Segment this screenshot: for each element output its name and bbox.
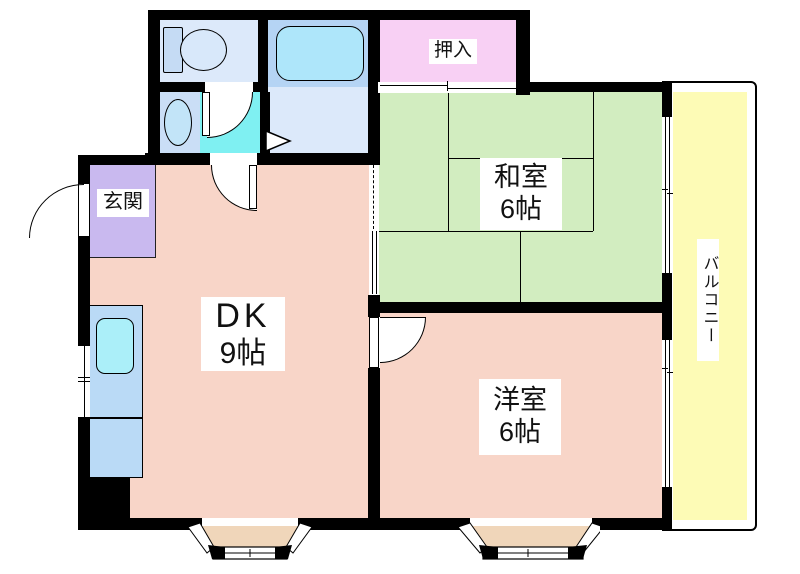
sliding-track-line (372, 231, 373, 294)
dk-washroom-door-panel (249, 165, 257, 209)
oshiire-label: 押入 (429, 39, 477, 64)
wall (298, 518, 470, 530)
balcony-label-text: バルコニー (699, 255, 718, 345)
tatami-line (593, 92, 594, 231)
youshitsu-label-text: 洋室 (493, 385, 547, 417)
washitsu-size-text: 6帖 (500, 194, 542, 226)
youshitsu-door-panel (369, 317, 379, 368)
bath-door-marker (265, 128, 293, 154)
sliding-track-tick (667, 193, 673, 194)
bay-window-youshitsu (455, 516, 600, 562)
sliding-track-line (669, 117, 670, 273)
wall (368, 295, 380, 317)
sliding-track-line (665, 117, 666, 273)
kitchen-counter-divider (88, 417, 143, 419)
wall (662, 92, 672, 117)
tatami-line (378, 231, 593, 232)
entrance-door-arc (29, 184, 84, 238)
wall (78, 417, 90, 478)
sliding-track-tick (447, 81, 448, 91)
wall (516, 10, 530, 95)
wall (148, 10, 530, 20)
sliding-track-tick (662, 189, 668, 190)
tatami-line (520, 231, 521, 302)
sliding-track-tick (667, 372, 673, 373)
washitsu-label: 和室 6帖 (480, 158, 562, 230)
tatami-line (448, 92, 449, 231)
fusuma-dashed-line (373, 165, 374, 229)
toilet-bowl-fixture (180, 29, 227, 71)
kitchen-sink-fixture (96, 318, 134, 374)
wall (257, 153, 380, 165)
wall (378, 302, 672, 313)
youshitsu-size-text: 6帖 (499, 417, 541, 449)
sliding-track-line (669, 340, 670, 487)
sliding-track-line (448, 88, 516, 89)
genkan-label: 玄関 (97, 189, 149, 217)
window-tick (78, 381, 90, 382)
bathtub-fixture (276, 26, 364, 81)
bay-window-dk (185, 516, 315, 562)
balcony-label: バルコニー (697, 239, 719, 361)
dk-size-text: 9帖 (220, 336, 267, 371)
wall (78, 237, 90, 346)
youshitsu-label: 洋室 6帖 (479, 379, 561, 455)
dk-label: DK 9帖 (201, 297, 285, 371)
sliding-track-line (380, 85, 448, 86)
sliding-track-line (376, 231, 377, 294)
dk-label-text: DK (215, 296, 270, 336)
balcony-sliding-door-youshitsu (662, 340, 673, 487)
balcony-sliding-door-washitsu (662, 117, 673, 273)
washroom-door-panel (202, 92, 210, 136)
wall (78, 478, 130, 530)
wall (78, 155, 157, 165)
genkan-label-text: 玄関 (103, 191, 143, 215)
wall (530, 82, 672, 92)
sliding-track-tick (662, 368, 668, 369)
wall (368, 368, 380, 530)
wall (253, 82, 268, 92)
window-tick (78, 377, 90, 378)
wall (592, 518, 672, 530)
dk-washitsu-partition (369, 165, 379, 295)
wall (148, 10, 160, 165)
washbasin-fixture (164, 99, 192, 146)
floor-plan: 玄関 押入 和室 6帖 DK 9帖 洋室 6帖 バルコニー (0, 0, 800, 574)
washitsu-label-text: 和室 (494, 162, 548, 194)
wall (160, 82, 205, 92)
oshiire-label-text: 押入 (434, 40, 472, 62)
sliding-track-line (665, 340, 666, 487)
